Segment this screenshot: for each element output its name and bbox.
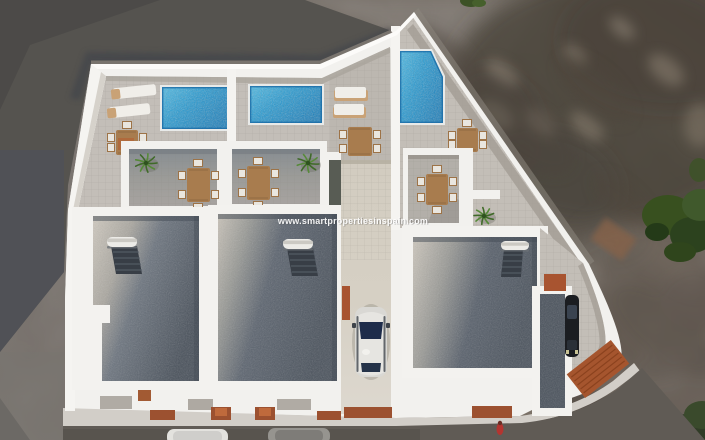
svg-text:www.smartpropertiesinspain.com: www.smartpropertiesinspain.com <box>277 216 428 226</box>
